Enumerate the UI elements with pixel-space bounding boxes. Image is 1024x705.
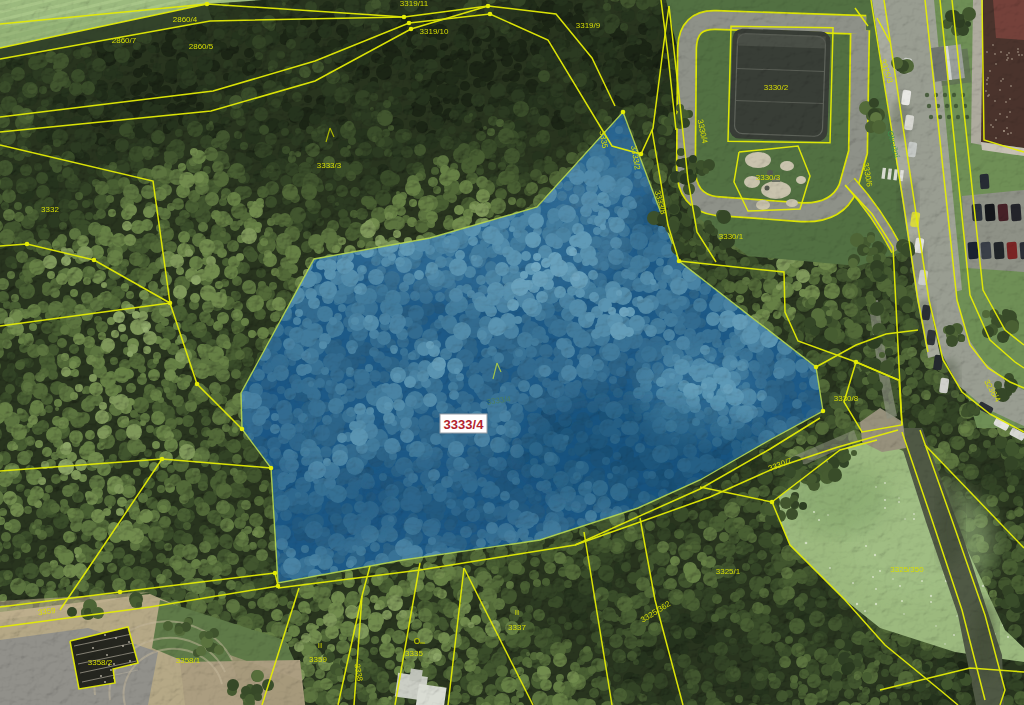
svg-text:3330/3: 3330/3: [756, 173, 781, 182]
svg-text:3319/10: 3319/10: [420, 27, 449, 36]
svg-text:II: II: [515, 608, 519, 617]
svg-text:2860/4: 2860/4: [173, 15, 198, 24]
svg-text:3325/350: 3325/350: [890, 565, 924, 574]
svg-text:3333/3: 3333/3: [317, 161, 342, 170]
svg-text:3330/2: 3330/2: [764, 83, 789, 92]
svg-text:3330/8: 3330/8: [834, 394, 859, 403]
svg-text:3359: 3359: [309, 655, 327, 664]
svg-text:2860/7: 2860/7: [112, 36, 137, 45]
svg-text:3319/9: 3319/9: [576, 21, 601, 30]
svg-text:3358/1: 3358/1: [176, 656, 201, 665]
svg-text:3319/11: 3319/11: [400, 0, 429, 8]
svg-text:3358/2: 3358/2: [88, 658, 113, 667]
svg-text:3330/1: 3330/1: [719, 232, 744, 241]
svg-text:3332: 3332: [41, 205, 59, 214]
svg-text:3333/4: 3333/4: [444, 417, 485, 432]
svg-text:3325/1: 3325/1: [716, 567, 741, 576]
svg-text:3337: 3337: [508, 623, 526, 632]
svg-text:3335: 3335: [405, 649, 423, 658]
svg-text:II: II: [318, 641, 322, 650]
svg-text:2860/5: 2860/5: [189, 42, 214, 51]
